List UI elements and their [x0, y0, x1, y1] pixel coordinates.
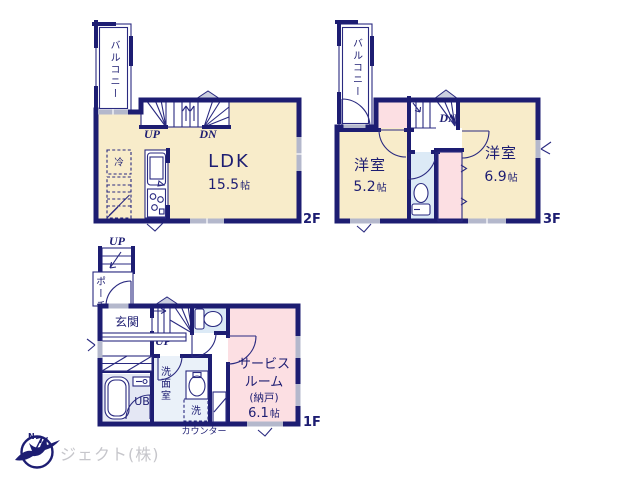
- counter: [213, 392, 226, 422]
- window-3f-right: [536, 140, 541, 158]
- bath-counter: [133, 377, 150, 386]
- stairs-2f: [141, 100, 229, 127]
- washroom-label: 洗面室: [159, 366, 171, 402]
- vent-mark-2f: [147, 223, 163, 231]
- entrance-door: [106, 304, 131, 309]
- service-room-label-1: サービス: [238, 357, 290, 372]
- window-service-right-1: [296, 336, 301, 358]
- vent-mark-3f-right: [541, 142, 551, 154]
- stairs-down-label-2f: DN: [198, 127, 218, 141]
- service-room-size: 6.1帖: [248, 406, 280, 421]
- window-service-right-2: [296, 384, 301, 406]
- vent-mark-3f-bottom: [357, 224, 371, 232]
- room1-3f-label: 洋室: [354, 156, 386, 174]
- floor-label-2f: 2F: [303, 212, 321, 227]
- stairs-up-label-2f: UP: [144, 127, 161, 141]
- laundry-label: 洗: [191, 405, 201, 417]
- company-name: ジェクト(株): [60, 445, 160, 464]
- floor-3f: バルコニー DN 洋室 5.2帖 洋室 6.9帖: [337, 22, 561, 232]
- window-1f-bottom: [247, 422, 283, 427]
- floor-label-1f: 1F: [303, 415, 321, 430]
- exterior-steps: [100, 248, 133, 272]
- vent-mark-1f-left: [87, 339, 95, 351]
- stairs-down-label-3f: DN: [438, 111, 458, 125]
- fridge-label: 冷: [114, 157, 124, 169]
- floor-plan-canvas: バルコニー 冷: [0, 0, 640, 480]
- window-1f-left: [98, 341, 103, 358]
- floor-2f: バルコニー 冷: [94, 22, 321, 231]
- room2-3f-label: 洋室: [485, 144, 517, 162]
- bathtub: [105, 377, 129, 419]
- outside-steps-label: UP: [109, 234, 126, 248]
- closet-3f-left: [376, 101, 409, 128]
- window-3f-bottom-left: [350, 219, 380, 224]
- counter-label: カウンター: [181, 426, 226, 437]
- balcony-3f-label: バルコニー: [351, 38, 363, 98]
- service-room-label-3: (納戸): [249, 391, 278, 404]
- company-logo: N ジェクト(株): [15, 432, 160, 468]
- floor-label-3f: 3F: [543, 212, 561, 227]
- bath-label: UB: [134, 395, 150, 408]
- entrance-label: 玄関: [115, 314, 139, 329]
- closet-3f-right: [438, 152, 462, 221]
- wash-basin: [186, 371, 208, 399]
- balcony-2f-label: バルコニー: [108, 40, 120, 100]
- floor-plan-svg: バルコニー 冷: [0, 0, 640, 480]
- shoe-cabinet: [102, 333, 186, 341]
- vent-mark-1f-bottom: [258, 428, 272, 436]
- north-label: N: [28, 432, 35, 441]
- service-room-label-2: ルーム: [245, 375, 284, 390]
- storage-hatch: [102, 356, 152, 371]
- kitchen-counter: [145, 150, 168, 218]
- floor-1f: UP ポーチ UP 玄関: [87, 234, 321, 437]
- ldk-label: LDK: [208, 151, 250, 172]
